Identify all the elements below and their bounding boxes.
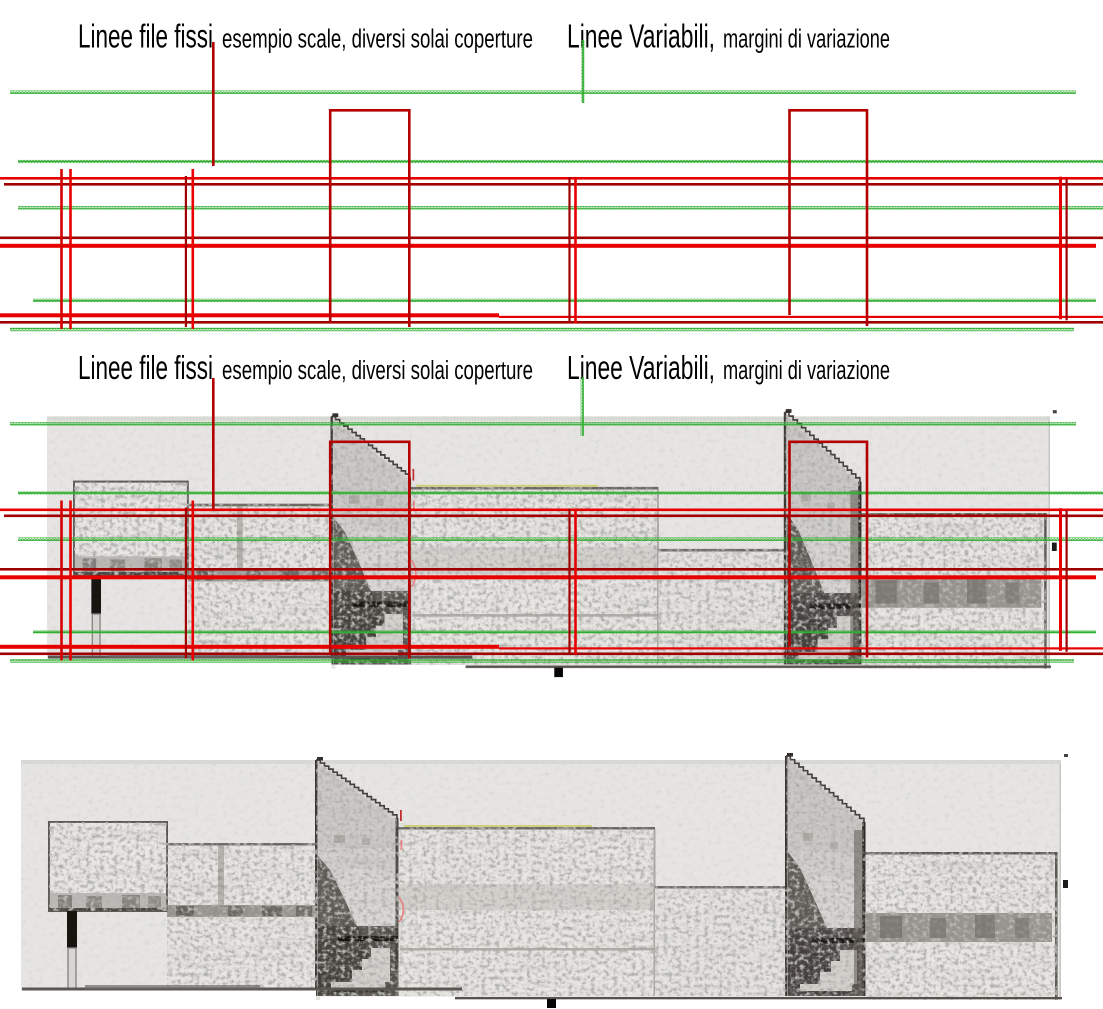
svg-text:margini di variazione: margini di variazione xyxy=(723,357,890,385)
svg-text:Linee Variabili,: Linee Variabili, xyxy=(567,349,715,386)
svg-text:esempio scale, diversi solai c: esempio scale, diversi solai coperture xyxy=(222,25,533,53)
svg-text:Linee Variabili,: Linee Variabili, xyxy=(567,17,715,54)
svg-text:Linee file fissi: Linee file fissi xyxy=(78,17,213,54)
svg-text:margini di variazione: margini di variazione xyxy=(723,25,890,53)
svg-text:Linee file fissi: Linee file fissi xyxy=(78,349,213,386)
svg-text:esempio scale, diversi solai c: esempio scale, diversi solai coperture xyxy=(222,357,533,385)
